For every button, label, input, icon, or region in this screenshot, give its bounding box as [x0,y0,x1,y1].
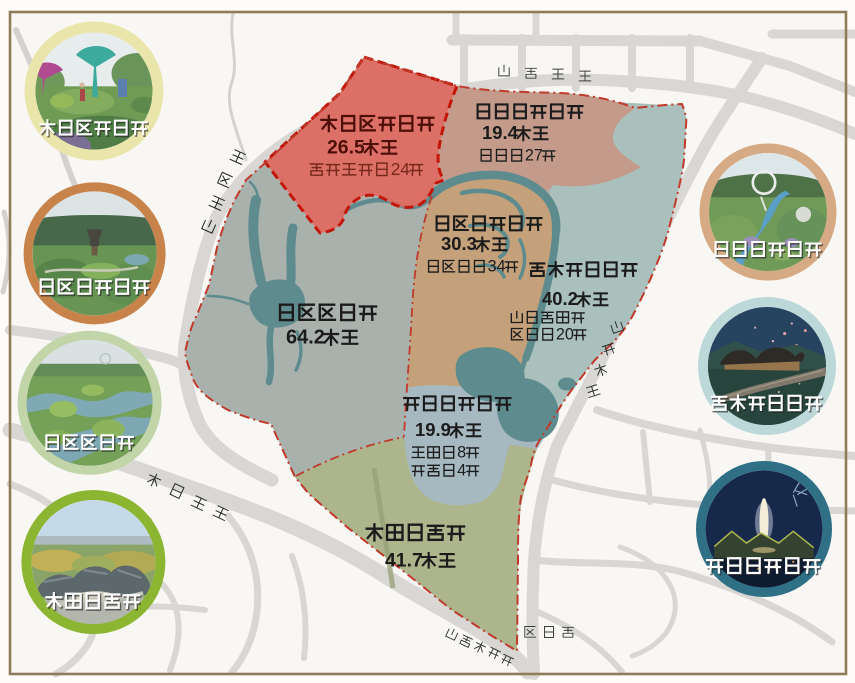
svg-text:41.7: 41.7 [385,550,423,572]
svg-text:8: 8 [457,443,466,461]
svg-text:26.5: 26.5 [327,137,365,159]
svg-text:20: 20 [556,325,574,343]
svg-text:30.3: 30.3 [441,233,477,254]
svg-text:64.2: 64.2 [286,327,325,349]
svg-text:19.4: 19.4 [482,122,519,143]
svg-text:19.9: 19.9 [415,419,451,440]
svg-text:34: 34 [488,257,506,275]
svg-text:40.2: 40.2 [542,288,578,309]
svg-text:4: 4 [457,461,466,479]
svg-text:27: 27 [525,146,543,164]
svg-text:24: 24 [391,159,411,179]
